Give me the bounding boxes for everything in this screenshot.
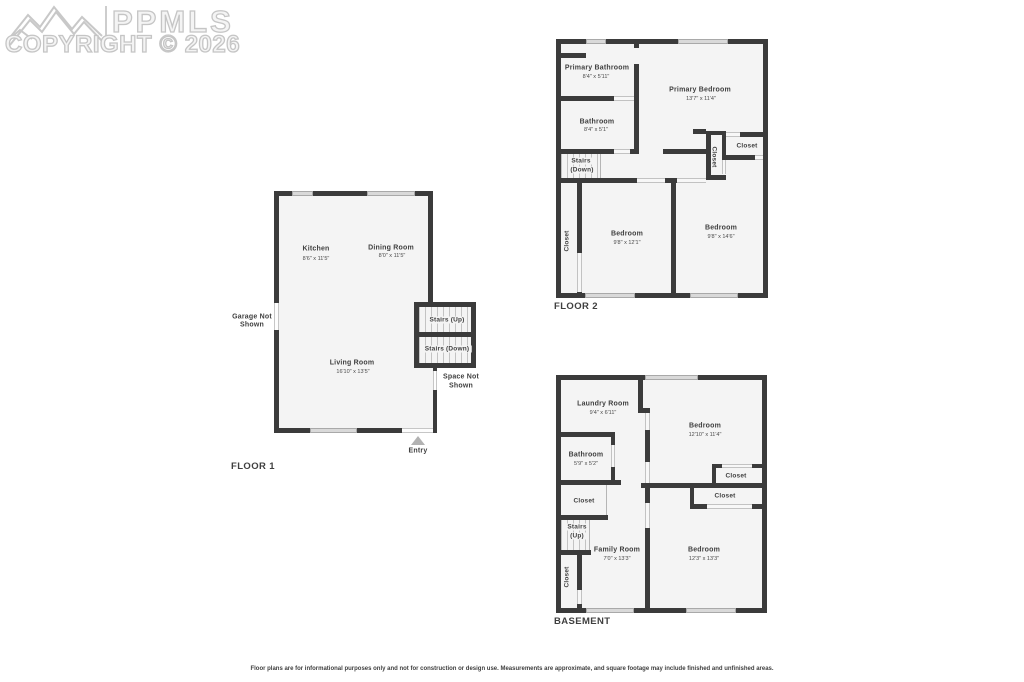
wall-segment	[693, 129, 706, 134]
room-dims-laundry: 9'4" x 6'11"	[590, 410, 617, 416]
wall-segment	[641, 483, 767, 488]
space-note-line1: Space Not	[443, 374, 479, 381]
closet-label-bottom-left: Closet	[564, 566, 571, 587]
room-dims-bathroom-bsmt: 5'9" x 5'2"	[574, 461, 598, 467]
entry-label: Entry	[409, 448, 428, 455]
room-label-living: Living Room	[330, 360, 375, 367]
space-note-line2: Shown	[449, 383, 473, 390]
room-label-dining: Dining Room	[368, 245, 414, 252]
watermark-copyright: COPYRIGHT © 2026	[5, 31, 240, 59]
wall-segment	[690, 488, 694, 504]
room-dims-bathroom-f2: 8'4" x 5'1"	[584, 127, 608, 133]
closet-label-left: Closet	[564, 230, 571, 251]
wall-segment	[556, 178, 637, 183]
window	[310, 428, 357, 433]
room-label-bathroom-bsmt: Bathroom	[569, 452, 604, 459]
door-opening	[614, 96, 634, 101]
wall-segment	[712, 464, 716, 483]
door-opening	[755, 155, 763, 160]
door-opening	[645, 462, 650, 483]
room-dims-bedroom-left-f2: 9'8" x 12'1"	[613, 240, 640, 246]
floor-area	[274, 191, 433, 433]
room-label-kitchen: Kitchen	[302, 246, 329, 253]
window	[586, 39, 606, 44]
wall-segment	[611, 437, 615, 445]
closet-label-hall: Closet	[711, 146, 718, 167]
wall-segment	[645, 430, 650, 462]
room-label-bedroom-top: Bedroom	[689, 423, 721, 430]
window	[292, 191, 313, 196]
floor-plan-page: PPMLS COPYRIGHT © 2026 Kitchen 8'6" x 11…	[0, 0, 1024, 682]
room-label-bedroom-right-f2: Bedroom	[705, 225, 737, 232]
stairs-down-label: Stairs (Down)	[423, 346, 472, 353]
door-opening	[707, 504, 752, 509]
wall-segment	[634, 64, 639, 154]
room-dims-primary-bedroom: 13'7" x 11'4"	[686, 96, 716, 102]
room-dims-bedroom-top: 12'10" x 11'4"	[689, 432, 722, 438]
wall-segment	[556, 375, 561, 613]
room-dims-bedroom-bottom: 12'3" x 13'3"	[689, 556, 719, 562]
floor1-title: FLOOR 1	[231, 461, 275, 472]
room-dims-bedroom-right-f2: 9'8" x 14'6"	[707, 234, 734, 240]
floor2-title: FLOOR 2	[554, 301, 598, 312]
door-opening	[645, 503, 650, 528]
window	[690, 293, 738, 298]
room-label-bathroom-f2: Bathroom	[580, 119, 615, 126]
window	[585, 293, 635, 298]
window	[678, 39, 728, 44]
room-label-bedroom-bottom: Bedroom	[688, 547, 720, 554]
stairs-up-line2: (Up)	[568, 533, 586, 540]
wall-segment	[752, 504, 767, 509]
closet-label-right: Closet	[736, 143, 757, 150]
stairs-up-label: Stairs (Up)	[427, 317, 466, 324]
wall-segment	[690, 504, 707, 509]
door-opening	[722, 160, 726, 174]
wall-segment	[671, 183, 676, 298]
wall-segment	[556, 432, 615, 437]
room-dims-dining: 8'0" x 11'5"	[379, 253, 406, 259]
wall-segment	[561, 53, 586, 58]
window	[645, 375, 698, 380]
wall-segment	[762, 375, 767, 613]
door-opening	[433, 371, 437, 390]
wall-segment	[630, 149, 639, 154]
stairs-label-line1: Stairs	[569, 158, 592, 165]
wall-segment	[726, 155, 755, 160]
wall-segment	[577, 604, 582, 613]
door-opening	[637, 178, 665, 183]
closet-label-right-upper: Closet	[725, 473, 746, 480]
door-opening	[614, 149, 630, 154]
stair-edge-line	[600, 154, 601, 178]
window	[686, 608, 736, 613]
window	[367, 191, 415, 196]
window	[586, 608, 634, 613]
wall-segment	[763, 39, 768, 298]
door-opening	[677, 178, 706, 183]
door-opening	[645, 413, 650, 430]
door-opening	[611, 445, 615, 467]
wall-segment	[740, 132, 768, 137]
garage-note-line1: Garage Not	[232, 314, 272, 321]
wall-segment	[663, 149, 706, 154]
room-dims-kitchen: 8'6" x 11'5"	[303, 256, 330, 262]
entry-arrow-icon	[411, 436, 425, 445]
disclaimer-text: Floor plans are for informational purpos…	[250, 666, 773, 672]
wall-segment	[706, 175, 726, 180]
door-opening	[577, 590, 582, 604]
garage-note-line2: Shown	[240, 322, 264, 329]
basement-title: BASEMENT	[554, 616, 611, 627]
wall-segment	[433, 390, 437, 433]
room-dims-family: 7'0" x 13'3"	[603, 556, 630, 562]
room-label-laundry: Laundry Room	[577, 401, 629, 408]
stair-edge-line	[589, 520, 590, 550]
wall-segment	[577, 292, 582, 298]
closet-label-left-bsmt: Closet	[573, 498, 594, 505]
wall-segment	[577, 555, 582, 590]
wall-segment	[634, 44, 639, 48]
room-label-family: Family Room	[594, 547, 640, 554]
door-opening	[726, 132, 740, 137]
wall-segment	[556, 550, 591, 555]
room-label-bedroom-left-f2: Bedroom	[611, 231, 643, 238]
wall-segment	[645, 528, 650, 613]
door-opening	[722, 464, 752, 468]
wall-segment	[556, 480, 621, 485]
closet-label-right-lower: Closet	[714, 493, 735, 500]
garage-door-opening	[274, 303, 279, 330]
wall-segment	[577, 183, 582, 253]
wall-segment	[556, 96, 614, 101]
room-label-primary-bedroom: Primary Bedroom	[669, 87, 731, 94]
watermark: PPMLS COPYRIGHT © 2026	[2, 2, 262, 62]
wall-segment	[428, 191, 433, 307]
door-opening	[577, 253, 582, 292]
entry-door-opening	[402, 428, 433, 433]
wall-segment	[414, 363, 476, 368]
stairs-label-line2: (Down)	[568, 167, 595, 174]
room-label-primary-bathroom: Primary Bathroom	[565, 65, 629, 72]
wall-segment	[752, 464, 766, 468]
room-dims-primary-bathroom: 8'4" x 5'11"	[583, 74, 610, 80]
closet-opening-line	[606, 485, 607, 515]
wall-segment	[638, 375, 643, 408]
stairs-up-line1: Stairs	[565, 524, 588, 531]
room-dims-living: 16'10" x 13'5"	[336, 369, 369, 375]
